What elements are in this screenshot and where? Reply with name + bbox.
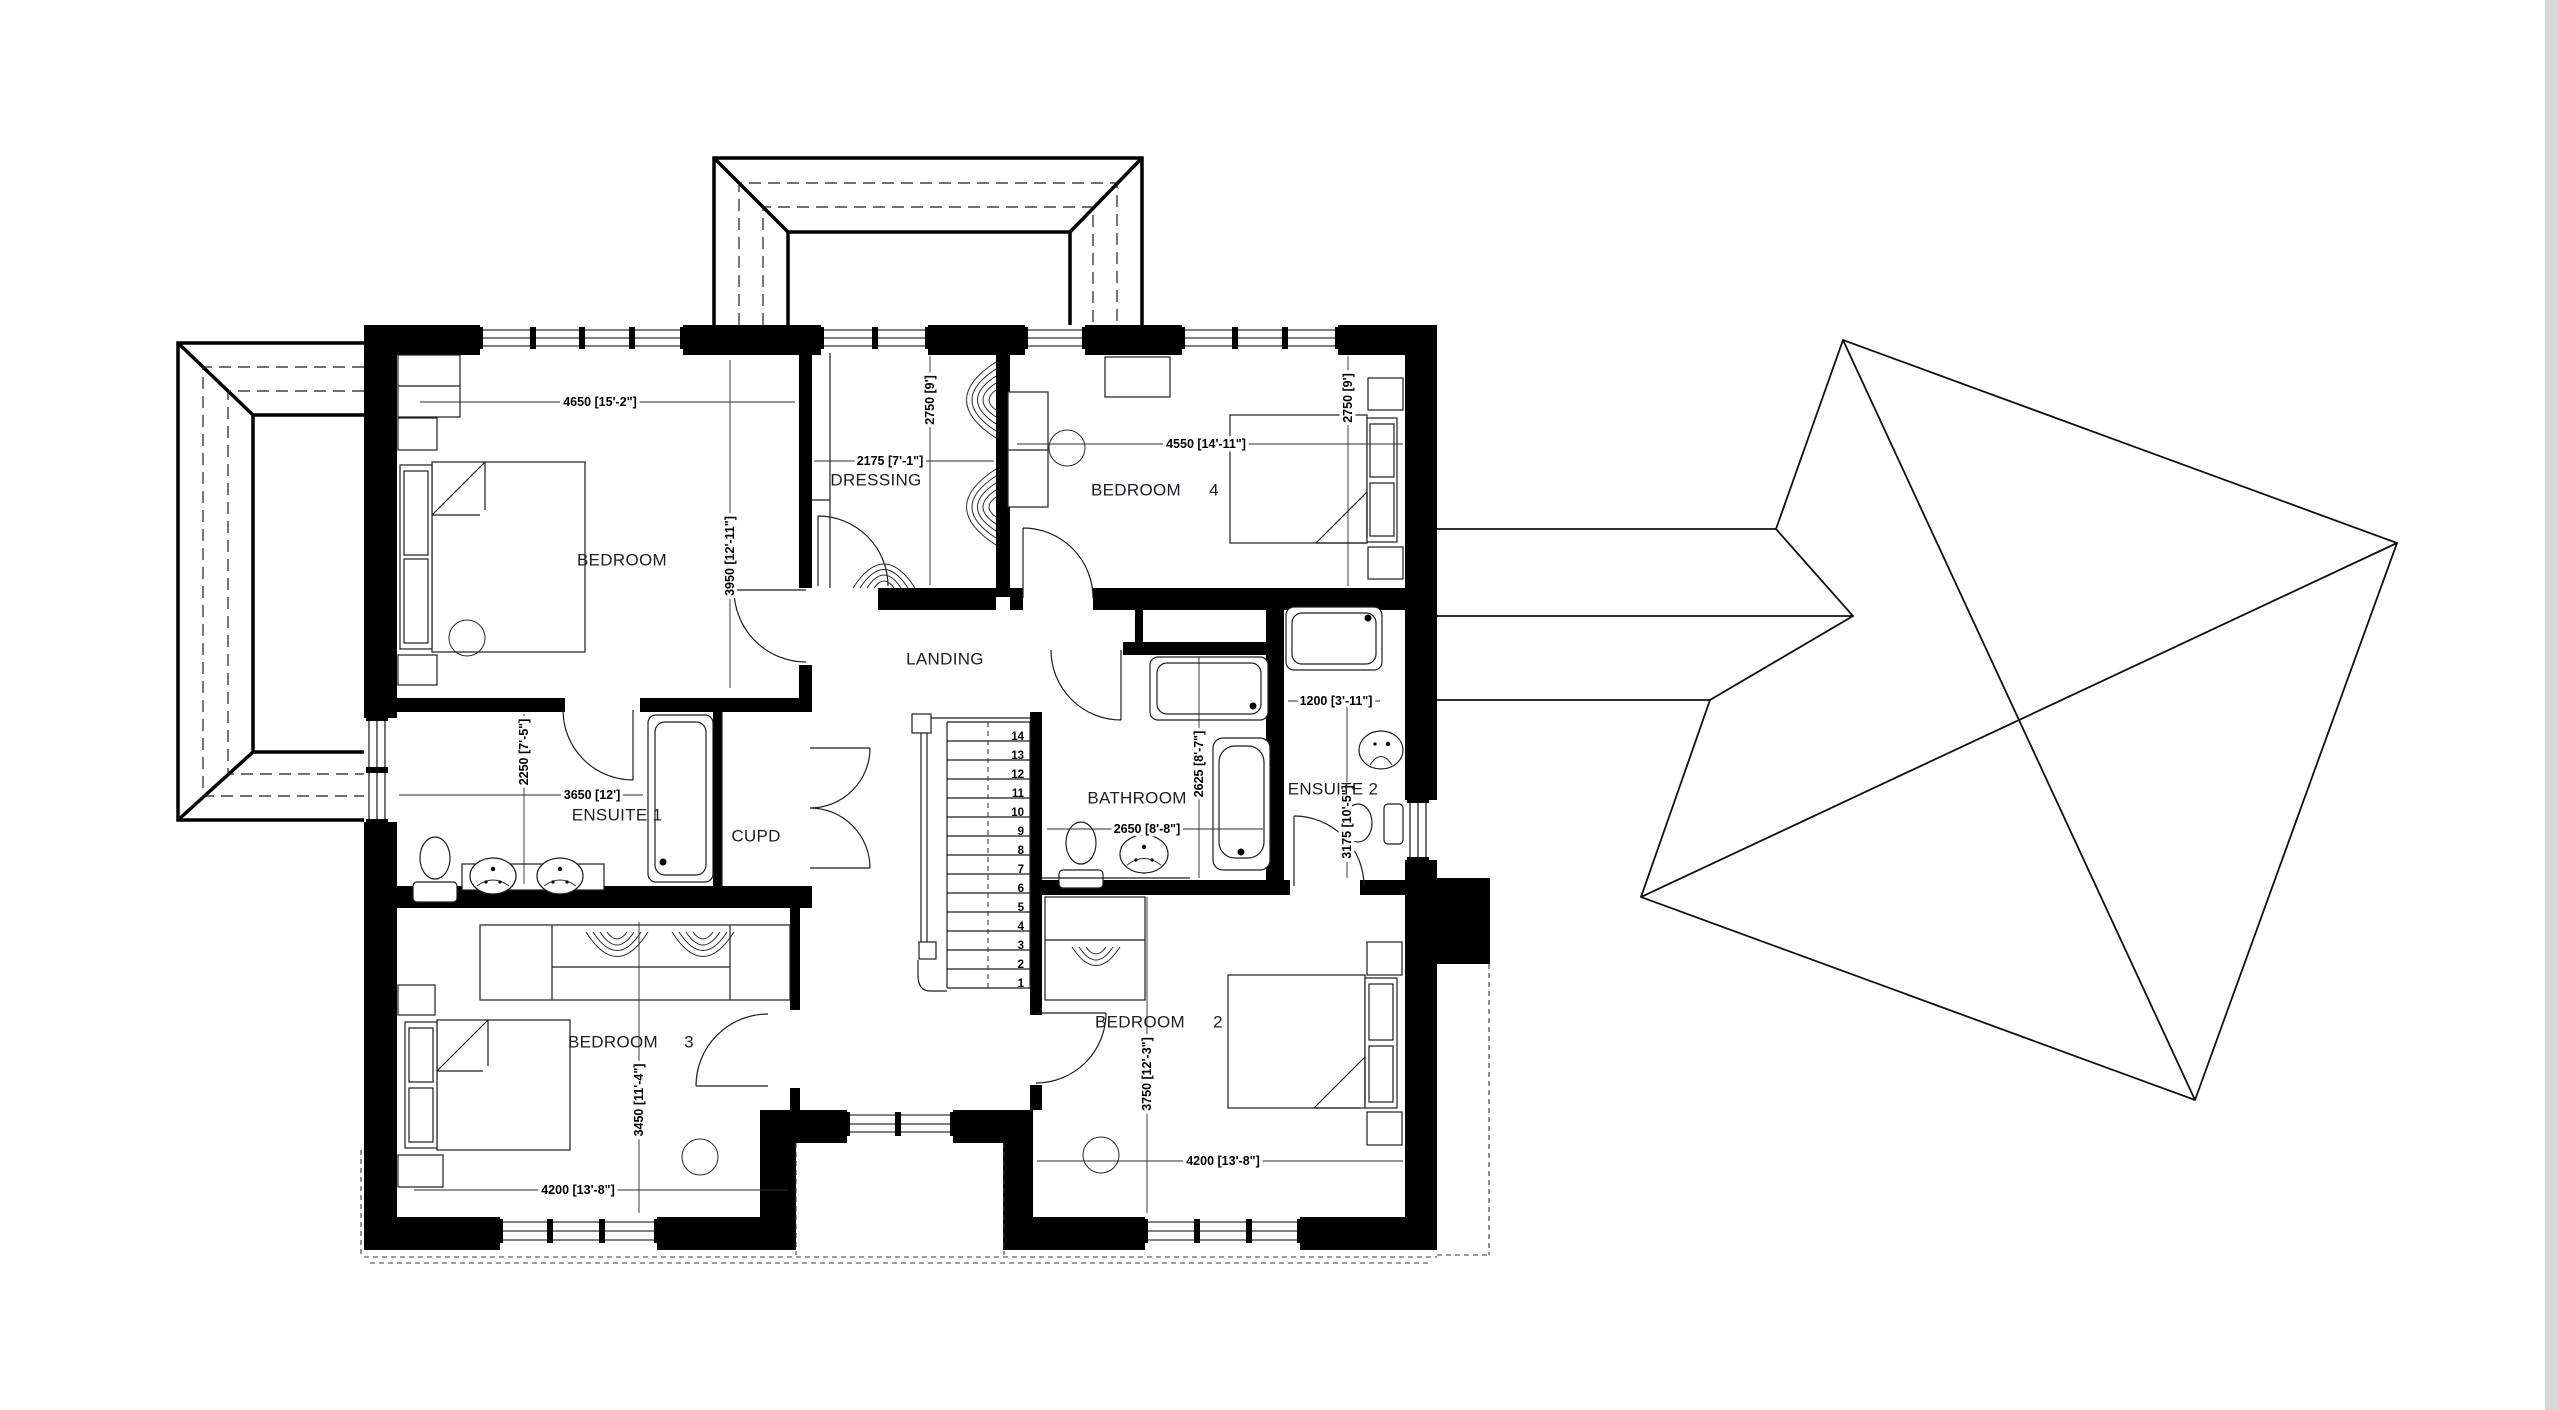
bathroom-fixtures (1042, 657, 1270, 888)
stair-number: 13 (1011, 750, 1024, 762)
dim-bedroom4-height: 2750 [9'] (1341, 373, 1355, 423)
stair-number: 8 (1018, 845, 1025, 857)
room-label-bedroom2: BEDROOM (1095, 1013, 1185, 1032)
stair-number: 6 (1018, 883, 1024, 895)
room-label-landing: LANDING (906, 650, 984, 669)
room-label-dressing: DRESSING (830, 471, 921, 490)
window-dressing-top (819, 327, 930, 349)
bedroom1-furniture (398, 355, 585, 685)
sink (537, 858, 583, 894)
room-label-bedroom1: BEDROOM (577, 551, 667, 570)
stair-number: 12 (1011, 769, 1024, 781)
room-label-ensuite1: ENSUITE 1 (572, 806, 663, 825)
staircase: 14 13 12 11 10 9 8 7 6 5 4 3 2 1 (912, 714, 1030, 991)
dim-bedroom3-height: 3450 [11'-4"] (632, 1064, 646, 1137)
dim-bedroom1-height: 3950 [12'-11"] (723, 516, 737, 596)
page-edge-strip (2545, 0, 2558, 1410)
wardrobe (480, 925, 790, 1000)
room-number-bedroom2: 2 (1213, 1013, 1223, 1032)
newel-post-top (912, 714, 931, 733)
toilet (1066, 822, 1096, 864)
ensuite1-fixtures (413, 715, 713, 902)
window-bedroom2-bottom (1143, 1219, 1302, 1243)
dim-bedroom3-width: 4200 [13'-8"] (541, 1183, 615, 1197)
bed (437, 1020, 570, 1150)
dim-dressing-height: 2750 [9'] (923, 375, 937, 425)
room-label-bathroom: BATHROOM (1087, 789, 1186, 808)
dim-ensuite1-width: 3650 [12'] (564, 788, 620, 802)
top-bay-roof (714, 158, 1142, 325)
stair-number: 4 (1018, 921, 1025, 933)
bed (1228, 975, 1365, 1108)
dim-bedroom2-width: 4200 [13'-8"] (1186, 1154, 1260, 1168)
chimney-breast (1437, 878, 1490, 964)
left-bay-roof (178, 343, 364, 820)
bed (1230, 415, 1367, 543)
dim-bedroom1-width: 4650 [15'-2"] (563, 395, 637, 409)
room-number-bedroom4: 4 (1209, 481, 1219, 500)
dim-bedroom2-height: 3750 [12'-3"] (1140, 1037, 1154, 1111)
sink (1359, 731, 1403, 769)
sink (1120, 835, 1168, 873)
dim-ensuite2-width: 1200 [3'-11"] (1300, 694, 1373, 708)
sink (470, 858, 516, 894)
room-label-bedroom3: BEDROOM (568, 1033, 658, 1052)
window-bedroom4-left (1023, 327, 1087, 349)
stair-number: 1 (1018, 978, 1025, 990)
stair-number: 3 (1018, 940, 1024, 952)
dim-bathroom-height: 2625 [8'-7"] (1192, 731, 1206, 798)
window-bedroom3-bottom (498, 1219, 659, 1243)
wardrobe (1045, 897, 1145, 1000)
floor-plan-page: 14 13 12 11 10 9 8 7 6 5 4 3 2 1 (0, 0, 2558, 1410)
door-dressing (818, 516, 888, 586)
room-number-bedroom3: 3 (684, 1033, 694, 1052)
stair-number: 5 (1018, 902, 1025, 914)
window-ensuite2-right (1407, 798, 1429, 862)
stair-up-arrow (918, 960, 947, 991)
stair-number: 2 (1018, 959, 1024, 971)
room-label-ensuite2: ENSUITE 2 (1288, 780, 1379, 799)
bedroom3-furniture (398, 925, 790, 1187)
stair-number: 10 (1011, 807, 1024, 819)
door-bedroom3 (696, 1014, 768, 1086)
toilet (420, 837, 450, 879)
floor-plan-canvas: 14 13 12 11 10 9 8 7 6 5 4 3 2 1 (0, 0, 2558, 1410)
dim-ensuite1-height: 2250 [7'-5"] (517, 719, 531, 786)
stair-number: 7 (1018, 864, 1024, 876)
ceiling-light (1083, 1137, 1119, 1173)
ceiling-light (1049, 430, 1085, 466)
stair-number: 9 (1018, 826, 1024, 838)
window-balcony (845, 1112, 955, 1136)
door-ensuite1 (563, 710, 633, 780)
door-cupd-double (810, 748, 870, 868)
newel-post-bottom (919, 942, 936, 959)
window-bedroom4-right (1180, 327, 1340, 349)
room-label-cupd: CUPD (731, 827, 780, 846)
bed (432, 462, 585, 652)
ceiling-light (682, 1139, 718, 1175)
dim-dressing-width: 2175 [7'-1"] (857, 454, 924, 468)
door-bedroom4 (1023, 528, 1093, 598)
window-ensuite1-left (366, 716, 388, 824)
door-bedroom1 (734, 590, 806, 662)
stair-number: 14 (1011, 731, 1024, 743)
room-label-bedroom4: BEDROOM (1091, 481, 1181, 500)
dim-bathroom-width: 2650 [8'-8"] (1114, 822, 1181, 836)
roof-plan (1437, 340, 2397, 1100)
bedroom2-furniture (1045, 897, 1402, 1173)
window-bedroom1-top (478, 327, 685, 349)
stair-number: 11 (1012, 788, 1025, 800)
dim-bedroom4-width: 4550 [14'-11"] (1166, 437, 1246, 451)
door-bathroom (1051, 650, 1121, 720)
